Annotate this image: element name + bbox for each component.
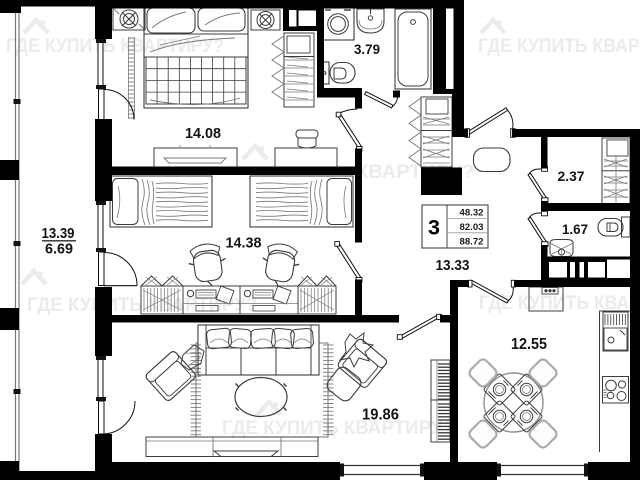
svg-text:88.72: 88.72 — [459, 237, 483, 248]
svg-text:2.37: 2.37 — [558, 169, 585, 184]
svg-text:14.08: 14.08 — [185, 125, 221, 142]
svg-text:3.79: 3.79 — [354, 42, 380, 57]
svg-text:3: 3 — [428, 216, 440, 240]
svg-text:ГДЕ КУПИТЬ КВАРТИРУ?: ГДЕ КУПИТЬ КВАРТИРУ? — [27, 295, 257, 316]
svg-text:13.33: 13.33 — [436, 257, 470, 274]
svg-text:1.67: 1.67 — [562, 222, 588, 237]
svg-text:6.69: 6.69 — [45, 242, 73, 258]
svg-text:ГДЕ КУПИТЬ КВАРТИРУ?: ГДЕ КУПИТЬ КВАРТИРУ? — [478, 36, 640, 57]
svg-text:ГДЕ КУПИТЬ КВАРТИРУ?: ГДЕ КУПИТЬ КВАРТИРУ? — [222, 418, 454, 439]
svg-text:48.32: 48.32 — [459, 208, 483, 219]
svg-text:13.39: 13.39 — [42, 225, 75, 242]
svg-text:14.38: 14.38 — [226, 235, 262, 252]
svg-text:ГДЕ КУПИТЬ КВАРТИРУ?: ГДЕ КУПИТЬ КВАРТИРУ? — [6, 36, 224, 57]
svg-text:82.03: 82.03 — [459, 222, 483, 233]
svg-text:19.86: 19.86 — [362, 407, 399, 424]
svg-text:12.55: 12.55 — [511, 336, 547, 353]
